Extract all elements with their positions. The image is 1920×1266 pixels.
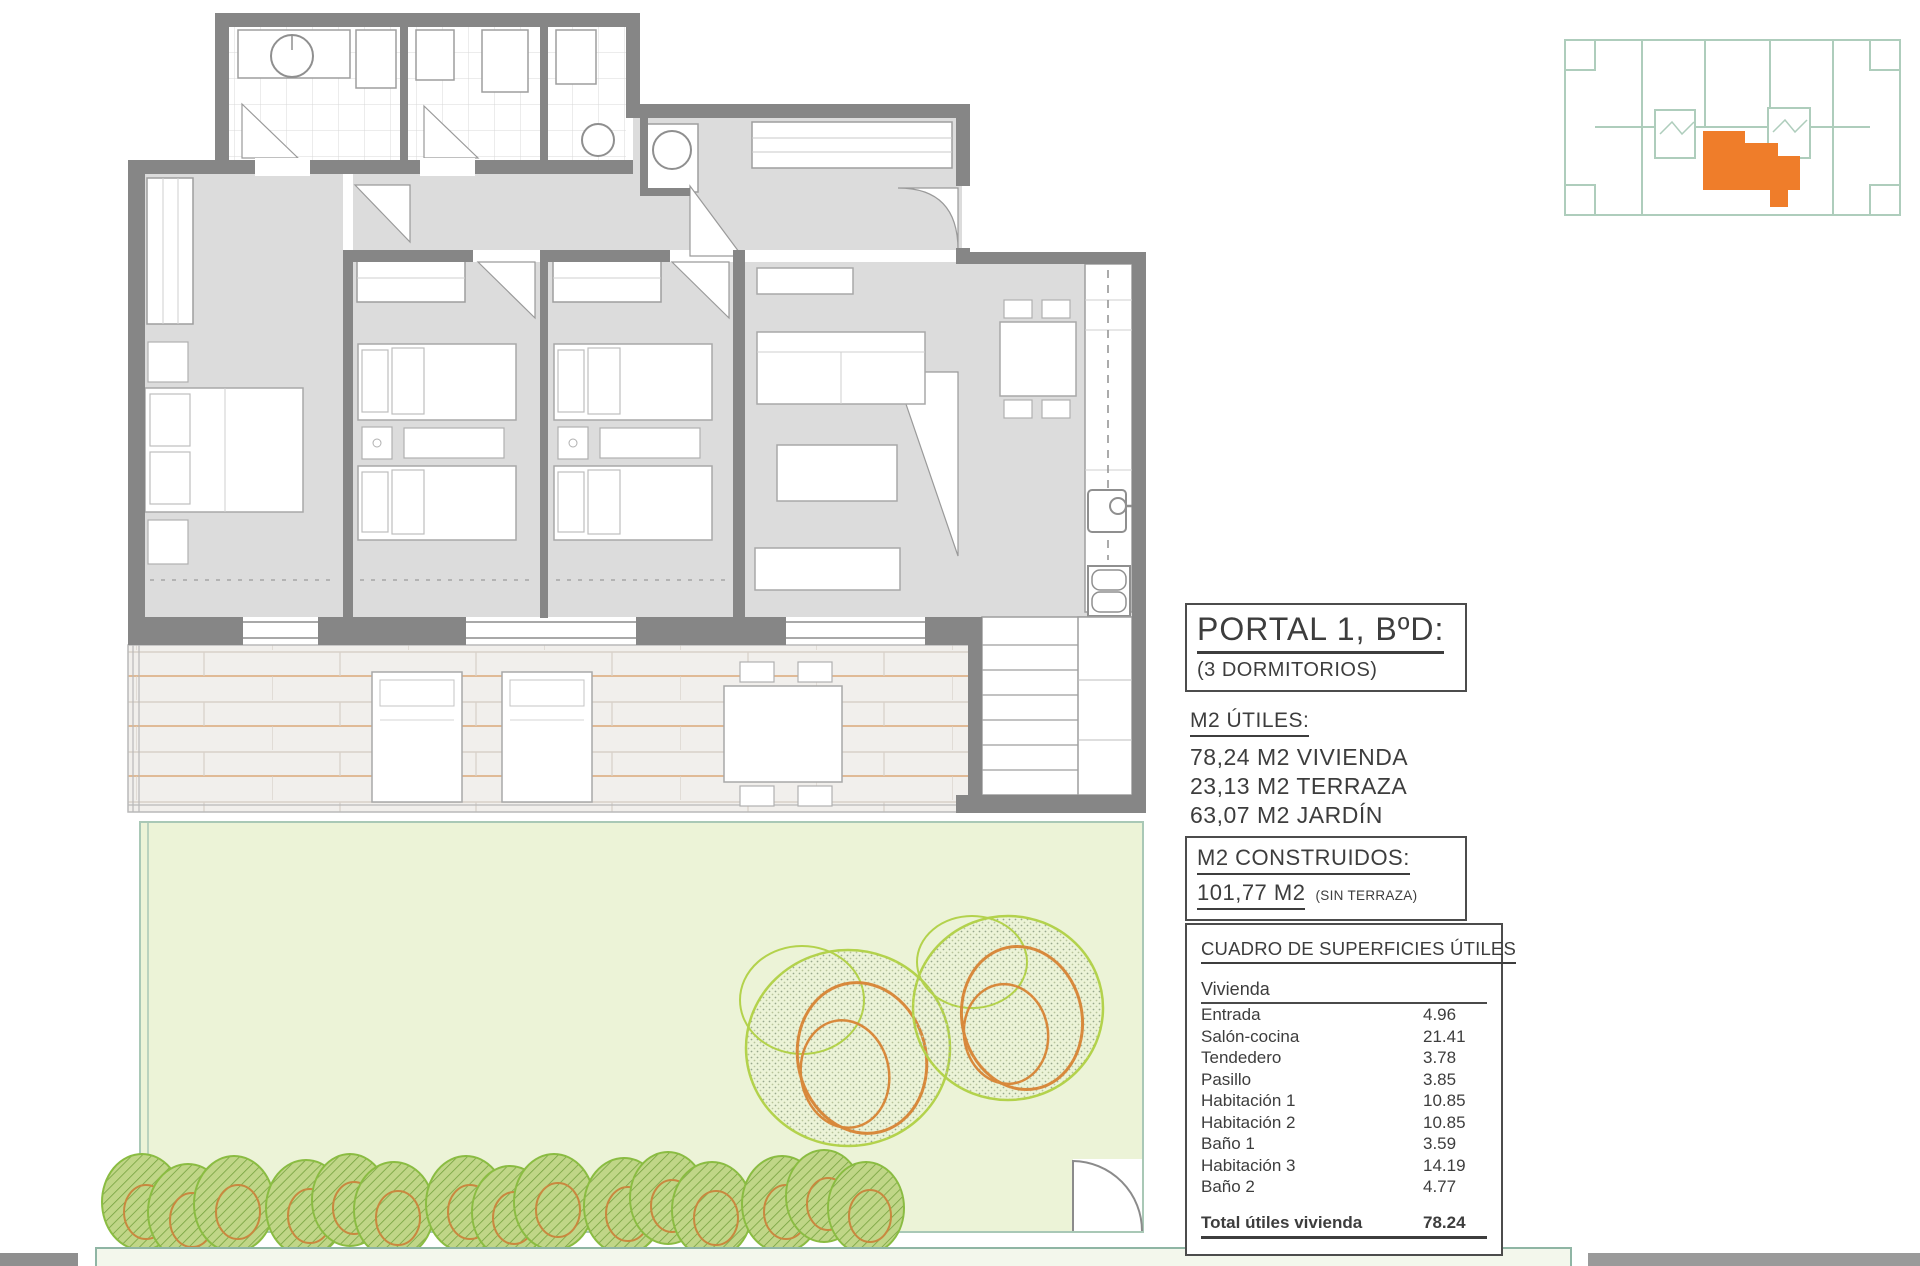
- table-total-label: Total útiles vivienda: [1201, 1213, 1423, 1233]
- tv-unit: [755, 548, 900, 590]
- built-area-heading: M2 CONSTRUIDOS:: [1197, 845, 1410, 875]
- toilet-icon: [356, 30, 396, 88]
- closet: [752, 122, 952, 168]
- table-row: Habitación 2 10.85: [1201, 1112, 1487, 1134]
- table-row: Baño 1 3.59: [1201, 1133, 1487, 1155]
- bush-row: [102, 1150, 904, 1260]
- garden-tree: [913, 916, 1103, 1101]
- useful-area-summary: M2 ÚTILES: 78,24 M2 VIVIENDA 23,13 M2 TE…: [1190, 709, 1490, 830]
- built-area-value: 101,77 M2: [1197, 880, 1305, 910]
- sideboard: [757, 268, 853, 294]
- table-row: Habitación 3 14.19: [1201, 1155, 1487, 1177]
- kitchen-counter: [1085, 264, 1140, 616]
- terrace: [128, 645, 970, 812]
- table-total-value: 78.24: [1423, 1213, 1487, 1233]
- wardrobe: [147, 178, 193, 324]
- washbasin-icon: [653, 131, 691, 169]
- table-row: Tendedero 3.78: [1201, 1047, 1487, 1069]
- table-row: Baño 2 4.77: [1201, 1176, 1487, 1198]
- table-total-row: Total útiles vivienda 78.24: [1201, 1213, 1487, 1239]
- built-area-box: M2 CONSTRUIDOS: 101,77 M2 (SIN TERRAZA): [1185, 836, 1467, 921]
- surfaces-table: CUADRO DE SUPERFICIES ÚTILES Vivienda En…: [1185, 923, 1503, 1256]
- table-row: Entrada 4.96: [1201, 1004, 1487, 1026]
- garden: [102, 822, 1143, 1260]
- coffee-table: [777, 445, 897, 501]
- useful-area-heading: M2 ÚTILES:: [1190, 709, 1309, 737]
- bottom-strips: [0, 1248, 1920, 1266]
- key-plan: [1565, 40, 1900, 215]
- stairs: [982, 617, 1132, 795]
- double-bed: [145, 388, 303, 512]
- table-row: Pasillo 3.85: [1201, 1069, 1487, 1091]
- unit-title: PORTAL 1, BºD:: [1197, 611, 1444, 654]
- surfaces-table-group: Vivienda: [1201, 979, 1487, 1004]
- useful-area-line: 23,13 M2 TERRAZA: [1190, 772, 1490, 801]
- double-sink-icon: [1088, 566, 1130, 616]
- washbasin-icon: [582, 124, 614, 156]
- surfaces-table-title: CUADRO DE SUPERFICIES ÚTILES: [1201, 938, 1516, 964]
- unit-subtitle: (3 DORMITORIOS): [1197, 659, 1455, 682]
- useful-area-line: 78,24 M2 VIVIENDA: [1190, 743, 1490, 772]
- floor-plan-canvas: [0, 0, 1920, 1266]
- unit-title-box: PORTAL 1, BºD: (3 DORMITORIOS): [1185, 603, 1467, 692]
- sofa: [757, 332, 925, 404]
- garden-gate: [1073, 1159, 1142, 1231]
- sun-lounger: [502, 672, 592, 802]
- table-row: Salón-cocina 21.41: [1201, 1026, 1487, 1048]
- table-row: Habitación 1 10.85: [1201, 1090, 1487, 1112]
- sun-lounger: [372, 672, 462, 802]
- built-area-note: (SIN TERRAZA): [1315, 888, 1417, 903]
- useful-area-line: 63,07 M2 JARDÍN: [1190, 801, 1490, 830]
